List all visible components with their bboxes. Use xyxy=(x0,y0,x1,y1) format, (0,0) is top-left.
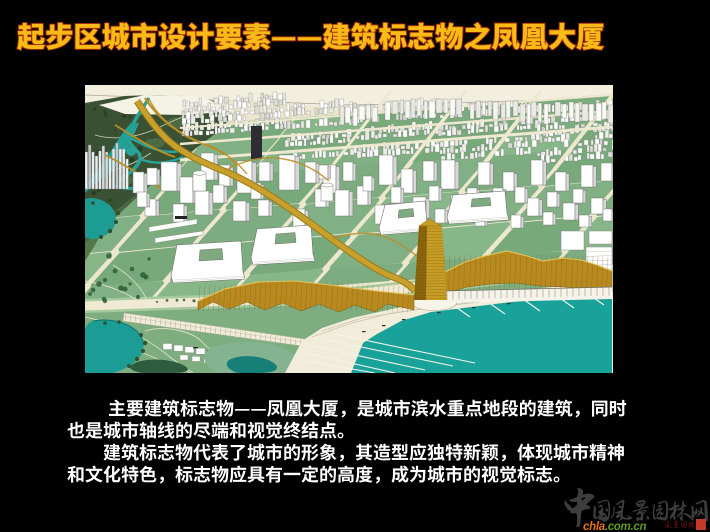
svg-text:chla.com.cn: chla.com.cn xyxy=(583,521,646,532)
